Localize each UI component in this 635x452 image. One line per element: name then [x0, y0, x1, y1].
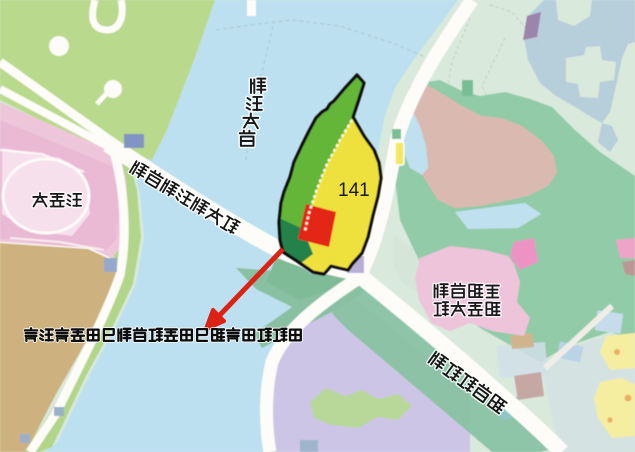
svg-text:141: 141 [338, 180, 370, 201]
